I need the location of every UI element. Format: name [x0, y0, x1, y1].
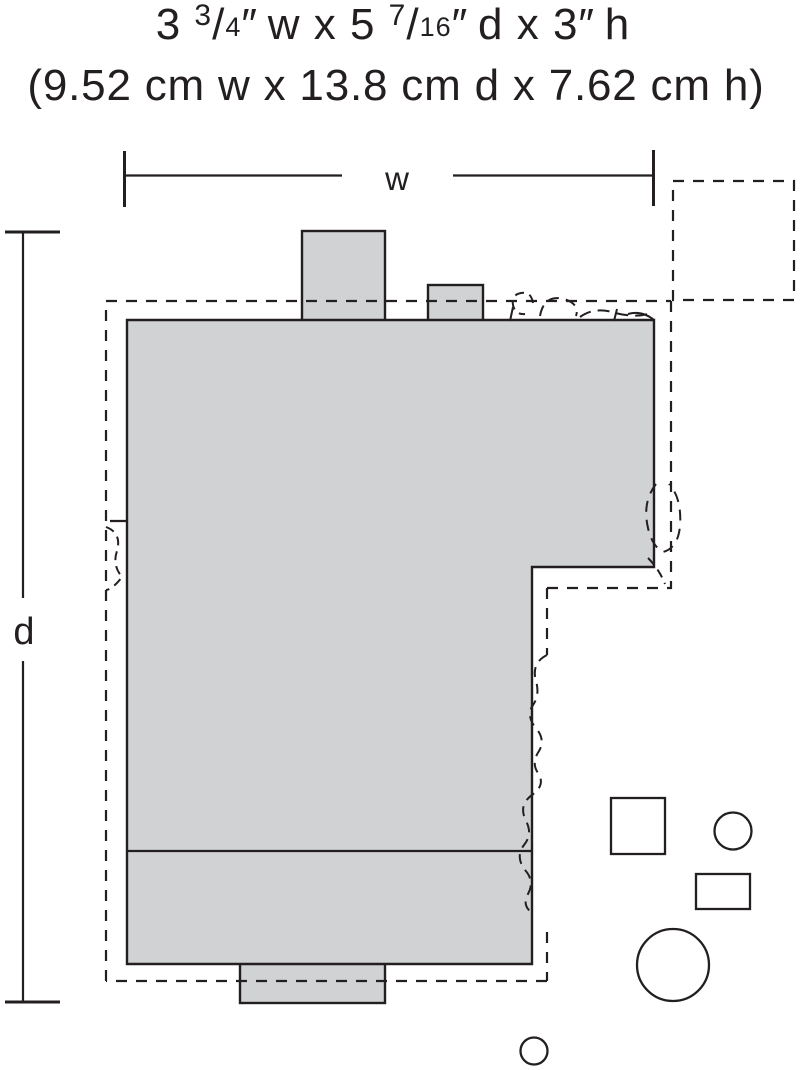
- svg-text:d: d: [13, 611, 34, 653]
- svg-text:w: w: [384, 160, 409, 197]
